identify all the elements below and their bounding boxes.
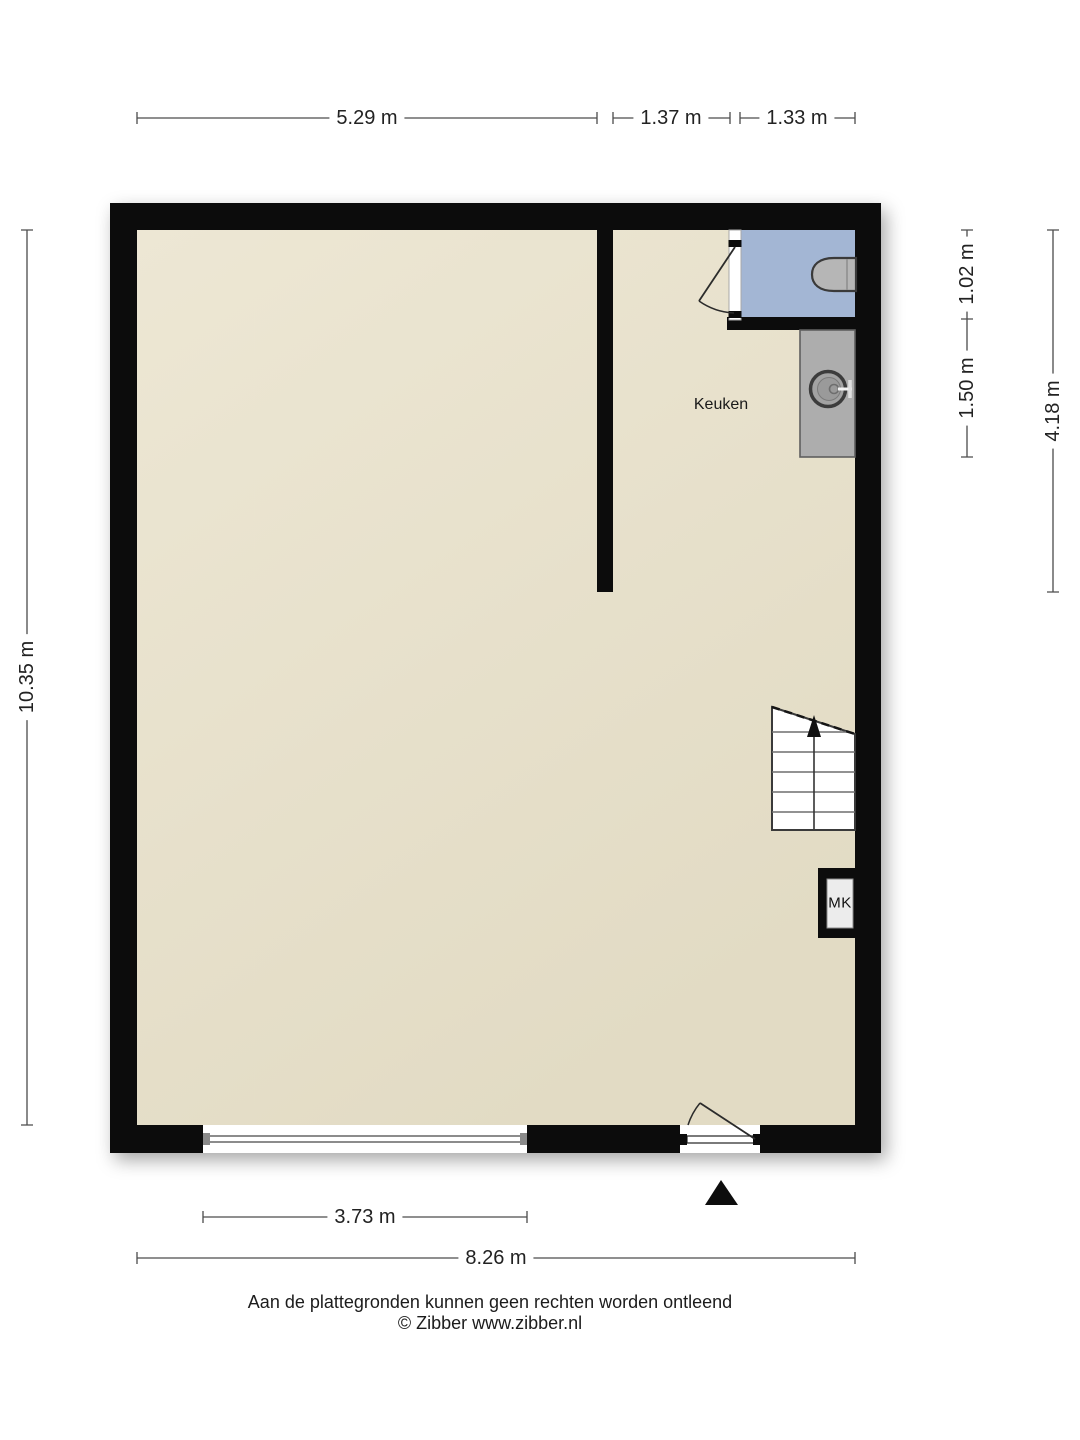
window — [203, 1125, 527, 1153]
wall-toilet-bottom — [727, 317, 855, 330]
kitchen-counter — [800, 330, 855, 457]
dim-label-counter-height: 1.50 m — [956, 350, 978, 425]
dim-label-kitchen-depth: 4.18 m — [1042, 373, 1064, 448]
toilet-icon — [812, 258, 856, 291]
wall-interior — [597, 230, 613, 592]
floorplan-page: 5.29 m 1.37 m 1.33 m 10.35 m 1.02 m 1.50… — [0, 0, 1080, 1440]
dim-label-toilet-height: 1.02 m — [956, 236, 978, 311]
entrance-marker-icon — [705, 1180, 738, 1205]
floorplan-drawing — [0, 0, 1080, 1440]
dim-label-top-left: 5.29 m — [329, 107, 404, 129]
dim-label-window-width: 3.73 m — [327, 1206, 402, 1228]
dim-label-total-width: 8.26 m — [458, 1247, 533, 1269]
meter-closet-label: MK — [828, 895, 852, 912]
wall-right — [855, 203, 881, 1153]
room-label-keuken: Keuken — [694, 396, 748, 414]
footer-copyright: © Zibber www.zibber.nl — [90, 1313, 890, 1334]
dim-label-left-height: 10.35 m — [16, 634, 38, 720]
wall-left — [110, 203, 137, 1153]
dim-label-top-middle: 1.37 m — [633, 107, 708, 129]
dim-label-top-right: 1.33 m — [759, 107, 834, 129]
footer-disclaimer: Aan de plattegronden kunnen geen rechten… — [90, 1292, 890, 1313]
wall-top — [110, 203, 881, 230]
window-endcap-icon — [520, 1133, 527, 1145]
window-endcap-icon — [203, 1133, 210, 1145]
main-room-floor — [137, 230, 855, 1125]
footer: Aan de plattegronden kunnen geen rechten… — [90, 1292, 890, 1334]
